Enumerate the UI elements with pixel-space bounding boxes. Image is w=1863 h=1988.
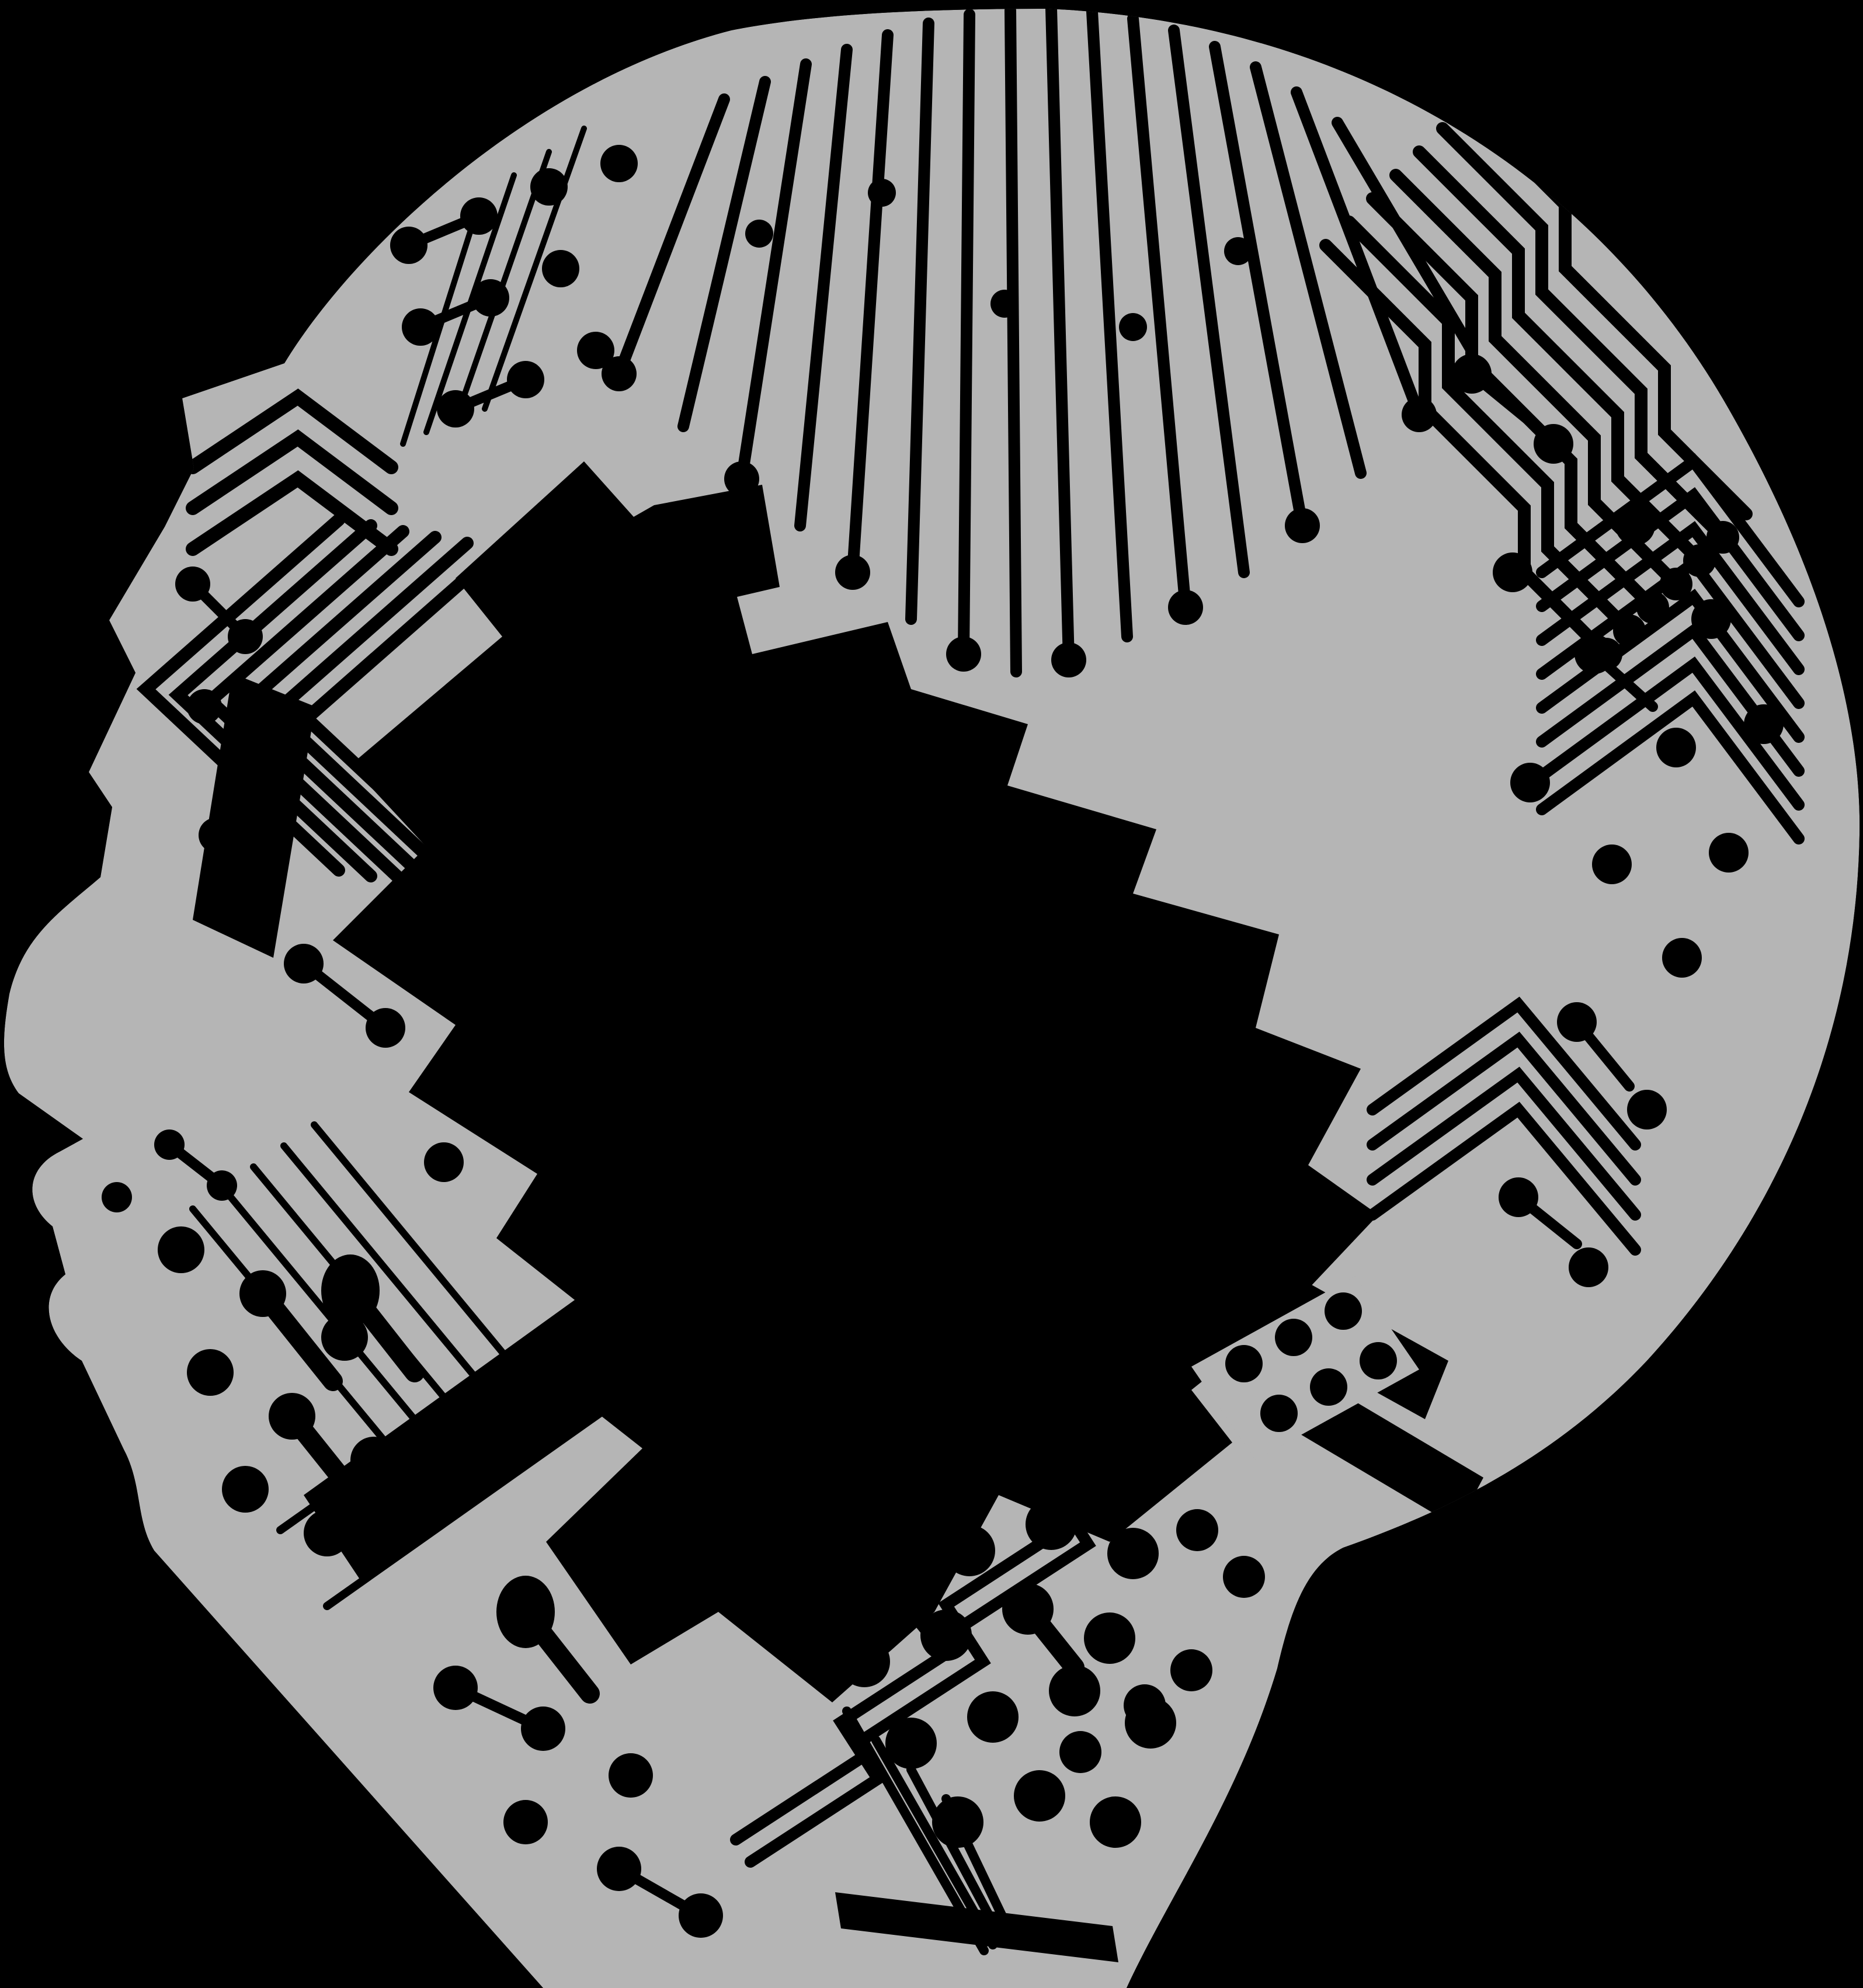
illustration-canvas: Circuit board head Monochrome illustrati… [0, 0, 1863, 1988]
circuit-head-illustration: Circuit board head Monochrome illustrati… [0, 0, 1863, 1988]
